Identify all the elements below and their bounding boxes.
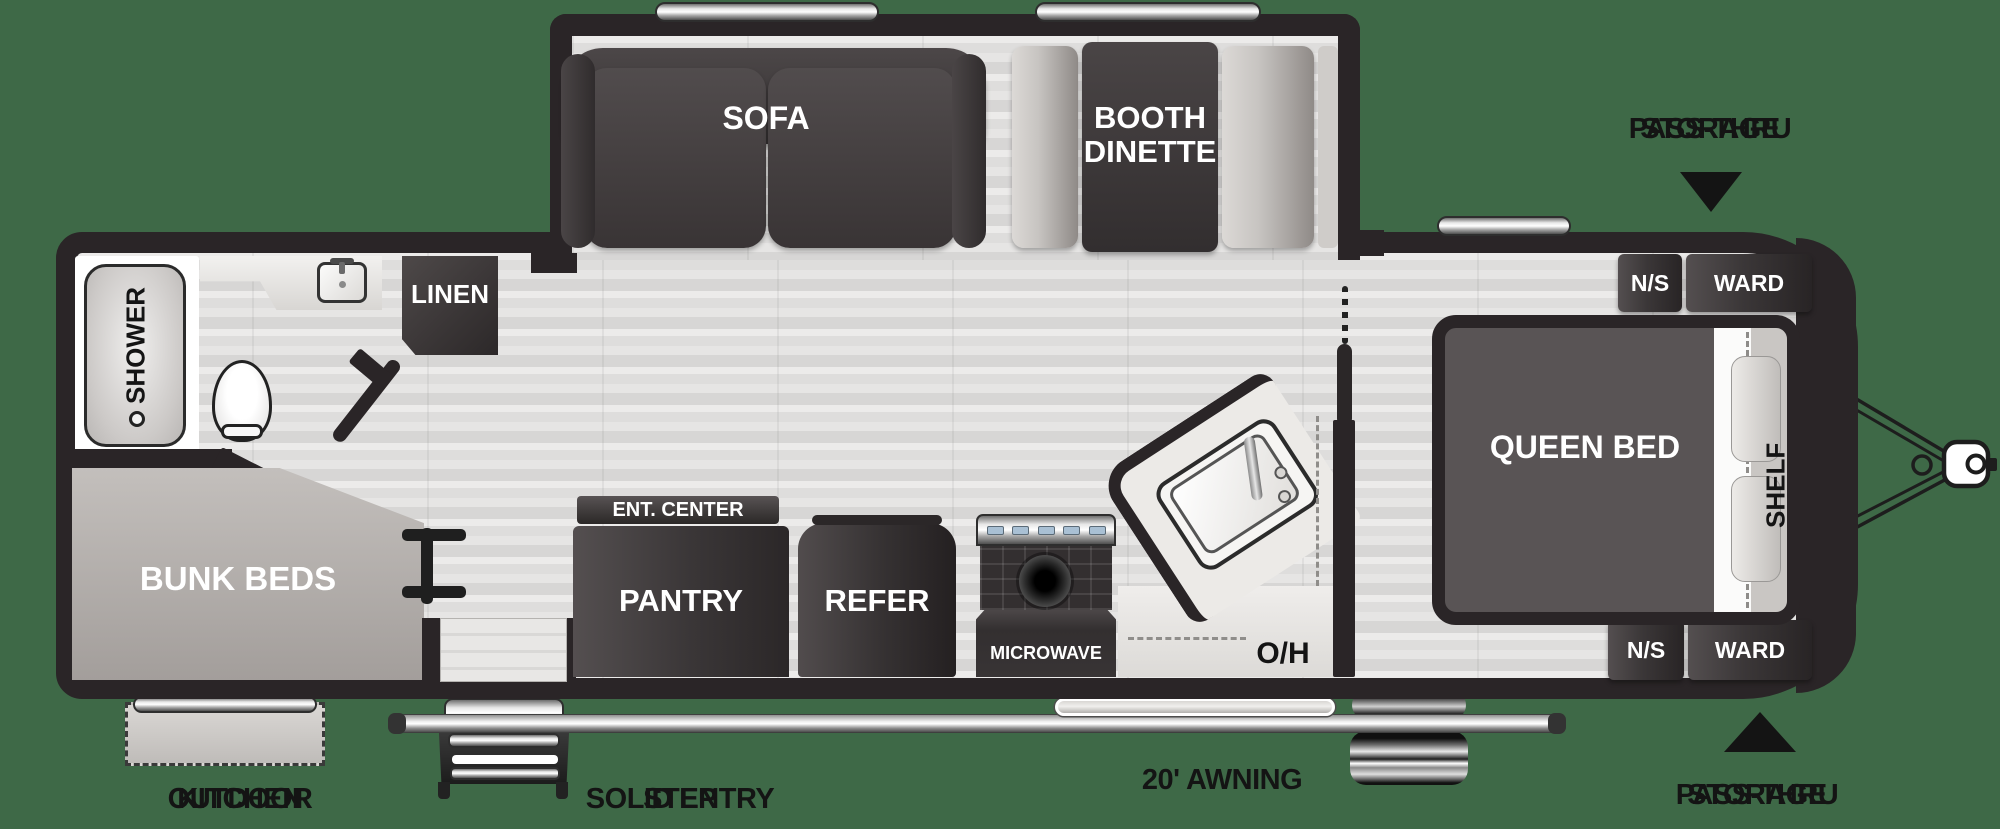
overhead-label: O/H (1233, 640, 1333, 668)
queen-bed: QUEEN BED SHELF (1432, 315, 1800, 625)
burner-icon (1019, 555, 1071, 607)
hitch-icon (1840, 380, 2000, 550)
bunk-beds-label: BUNK BEDS (128, 562, 348, 596)
grab-handle-icon (655, 2, 879, 22)
pass-thru-arrow-down-icon (1680, 172, 1742, 212)
pass-thru-storage-top-label: PASS-THRU STORAGE (1600, 98, 1820, 160)
floorplan-diagram: SOFA BOOTH DINETTE SHOWER LINEN BUNK BED… (0, 0, 2000, 829)
outdoor-kitchen-line2: KITCHEN (177, 784, 302, 814)
grab-handle-icon (1035, 2, 1261, 22)
awning-pole (396, 714, 1562, 733)
booth-dinette-label: BOOTH (1084, 102, 1216, 134)
sofa-cushion (768, 68, 956, 248)
sofa-armrest (561, 54, 595, 248)
dinette-bench-edge (1318, 46, 1338, 248)
entry-step-tread (450, 767, 560, 780)
nightstand-bottom-label: N/S (1608, 620, 1684, 680)
pantry-label: PANTRY (573, 584, 789, 618)
entry-door-jamb (422, 618, 440, 682)
shower-label: SHOWER (120, 283, 152, 408)
bunk-ladder-icon (402, 529, 466, 541)
shower-drain-icon (129, 411, 145, 427)
entry-door-panel (440, 618, 567, 682)
solid-entry-step-label: SOLID ENTRY STEP (570, 770, 790, 828)
solid-entry-step-line2: STEP (643, 784, 717, 814)
range-cooktop-chrome (976, 514, 1116, 546)
wheel-icon (1350, 731, 1468, 785)
wall-notch (1356, 230, 1384, 256)
pass-thru-storage-bottom-label: PASS-THRU STORAGE (1647, 764, 1867, 826)
shelf-label: SHELF (1761, 410, 1791, 560)
entry-step-leg (438, 782, 450, 799)
sliding-door-leaf (1337, 344, 1352, 426)
sliding-door-track-dots (1342, 286, 1348, 344)
nightstand-top-label: N/S (1618, 254, 1682, 312)
entry-step-tread (452, 755, 558, 764)
wall-notch (531, 253, 577, 273)
burner-knob-icon (1012, 526, 1029, 535)
awning-pole-cap (1548, 713, 1566, 734)
sofa-armrest (952, 54, 986, 248)
ent-center-label: ENT. CENTER (577, 498, 779, 523)
dinette-bench (1012, 46, 1078, 248)
pass-thru-storage-bottom-line2: STORAGE (1687, 780, 1826, 810)
outdoor-kitchen-label: OUTDOOR KITCHEN (130, 770, 350, 828)
burner-knob-icon (1089, 526, 1106, 535)
awning-roller (1055, 698, 1335, 716)
toilet-tank (221, 424, 263, 439)
burner-knob-icon (1038, 526, 1055, 535)
pass-thru-arrow-up-icon (1724, 712, 1796, 752)
wardrobe-bottom-label: WARD (1688, 620, 1812, 680)
bedroom-wall (1333, 420, 1355, 677)
refrigerator-handle (812, 515, 942, 525)
burner-knob-icon (1063, 526, 1080, 535)
grab-handle-icon (1437, 216, 1571, 236)
overhead-dash-line (1128, 637, 1246, 640)
booth-dinette-label: DINETTE (1084, 136, 1216, 168)
awning-label: 20' AWNING (1112, 764, 1332, 796)
dinette-bench (1222, 46, 1314, 248)
pass-thru-storage-top-line2: STORAGE (1640, 114, 1779, 144)
bathroom-wall (70, 449, 232, 471)
bunk-ladder-icon (402, 586, 466, 598)
wardrobe-top-label: WARD (1686, 254, 1812, 312)
entry-step-leg (556, 782, 568, 799)
refer-label: REFER (798, 584, 956, 618)
faucet-icon (339, 262, 345, 274)
awning-pole-cap (388, 713, 406, 734)
sofa-cushion (585, 68, 766, 248)
queen-bed-label: QUEEN BED (1465, 430, 1705, 464)
sink-drain-icon (339, 281, 346, 288)
microwave-label: MICROWAVE (976, 642, 1116, 664)
burner-knob-icon (987, 526, 1004, 535)
overhead-dash-line (1316, 416, 1319, 586)
sofa-label: SOFA (666, 102, 866, 134)
linen-label: LINEN (402, 280, 498, 308)
entry-step-tread (448, 733, 560, 748)
